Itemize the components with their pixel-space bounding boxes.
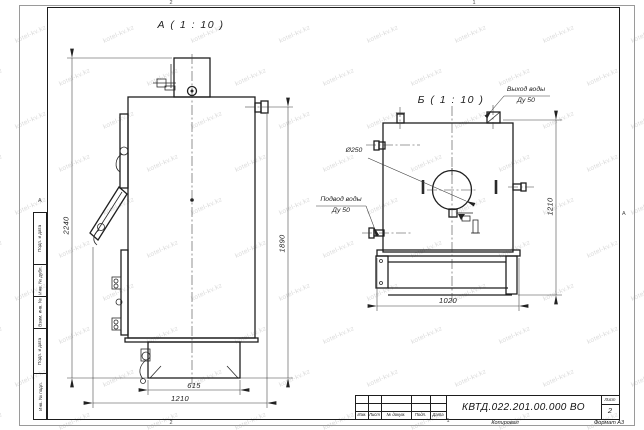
zone-marker-right: А xyxy=(622,211,626,217)
view-b-label: Б ( 1 : 10 ) xyxy=(406,94,496,106)
view-a-label: А ( 1 : 10 ) xyxy=(146,19,236,31)
title-block: Изм. Лист № докум. Подп. Дата КВТД.022.2… xyxy=(355,395,620,420)
dim-body-depth: 1210 xyxy=(155,394,205,403)
dim-outlet-height: 1890 xyxy=(278,224,287,264)
zone-marker-bottom-right: 1 xyxy=(440,418,456,424)
titleblock-sheet-number: 2 xyxy=(601,404,619,418)
callout-water-outlet-line2: Ду 50 xyxy=(500,97,552,104)
side-column-cell-1: Инв. № дубл. xyxy=(38,266,43,294)
titleblock-designation: КВТД.022.201.00.000 ВО xyxy=(446,396,601,418)
side-column-cell-4: Инв. № подл. xyxy=(38,382,43,411)
frame-side-column: Подп. и дата Инв. № дубл. Взам. инв. № П… xyxy=(33,212,47,420)
zone-marker-left: А xyxy=(38,198,42,204)
titleblock-sheet-label: Лист xyxy=(601,396,619,404)
titleblock-col-izm: Изм. xyxy=(356,411,368,418)
dim-rear-width: 1020 xyxy=(420,296,476,305)
callout-water-inlet-line2: Ду 50 xyxy=(314,207,368,214)
dim-base-depth: 615 xyxy=(169,381,219,390)
view-b-linework xyxy=(316,96,562,311)
callout-flue-diameter: Ø250 xyxy=(336,147,372,154)
zone-marker-bottom-left: 2 xyxy=(163,420,179,426)
view-a-linework xyxy=(67,54,293,408)
footer-copy-label: Копировал xyxy=(462,420,548,426)
side-column-cell-3: Подп. и дата xyxy=(38,337,43,364)
footer-format-label: Формат А3 xyxy=(576,420,642,426)
zone-marker-top-left: 2 xyxy=(163,0,179,6)
dim-total-height: 2240 xyxy=(62,206,71,246)
titleblock-col-dokum: № докум. xyxy=(381,411,411,418)
callout-water-inlet-line1: Подвод воды xyxy=(314,196,368,203)
side-column-cell-2: Взам. инв. № xyxy=(38,298,43,326)
titleblock-col-data: Дата xyxy=(430,411,446,418)
side-column-cell-0: Подп. и дата xyxy=(38,225,43,252)
titleblock-col-podp: Подп. xyxy=(411,411,430,418)
titleblock-col-list: Лист xyxy=(368,411,381,418)
zone-marker-top-right: 1 xyxy=(466,0,482,6)
drawing-sheet: kotel-kv.kzkotel-kv.kzkotel-kv.kzkotel-k… xyxy=(0,0,644,430)
callout-water-outlet-line1: Выход воды xyxy=(500,86,552,93)
dim-rear-height: 1210 xyxy=(546,185,555,229)
